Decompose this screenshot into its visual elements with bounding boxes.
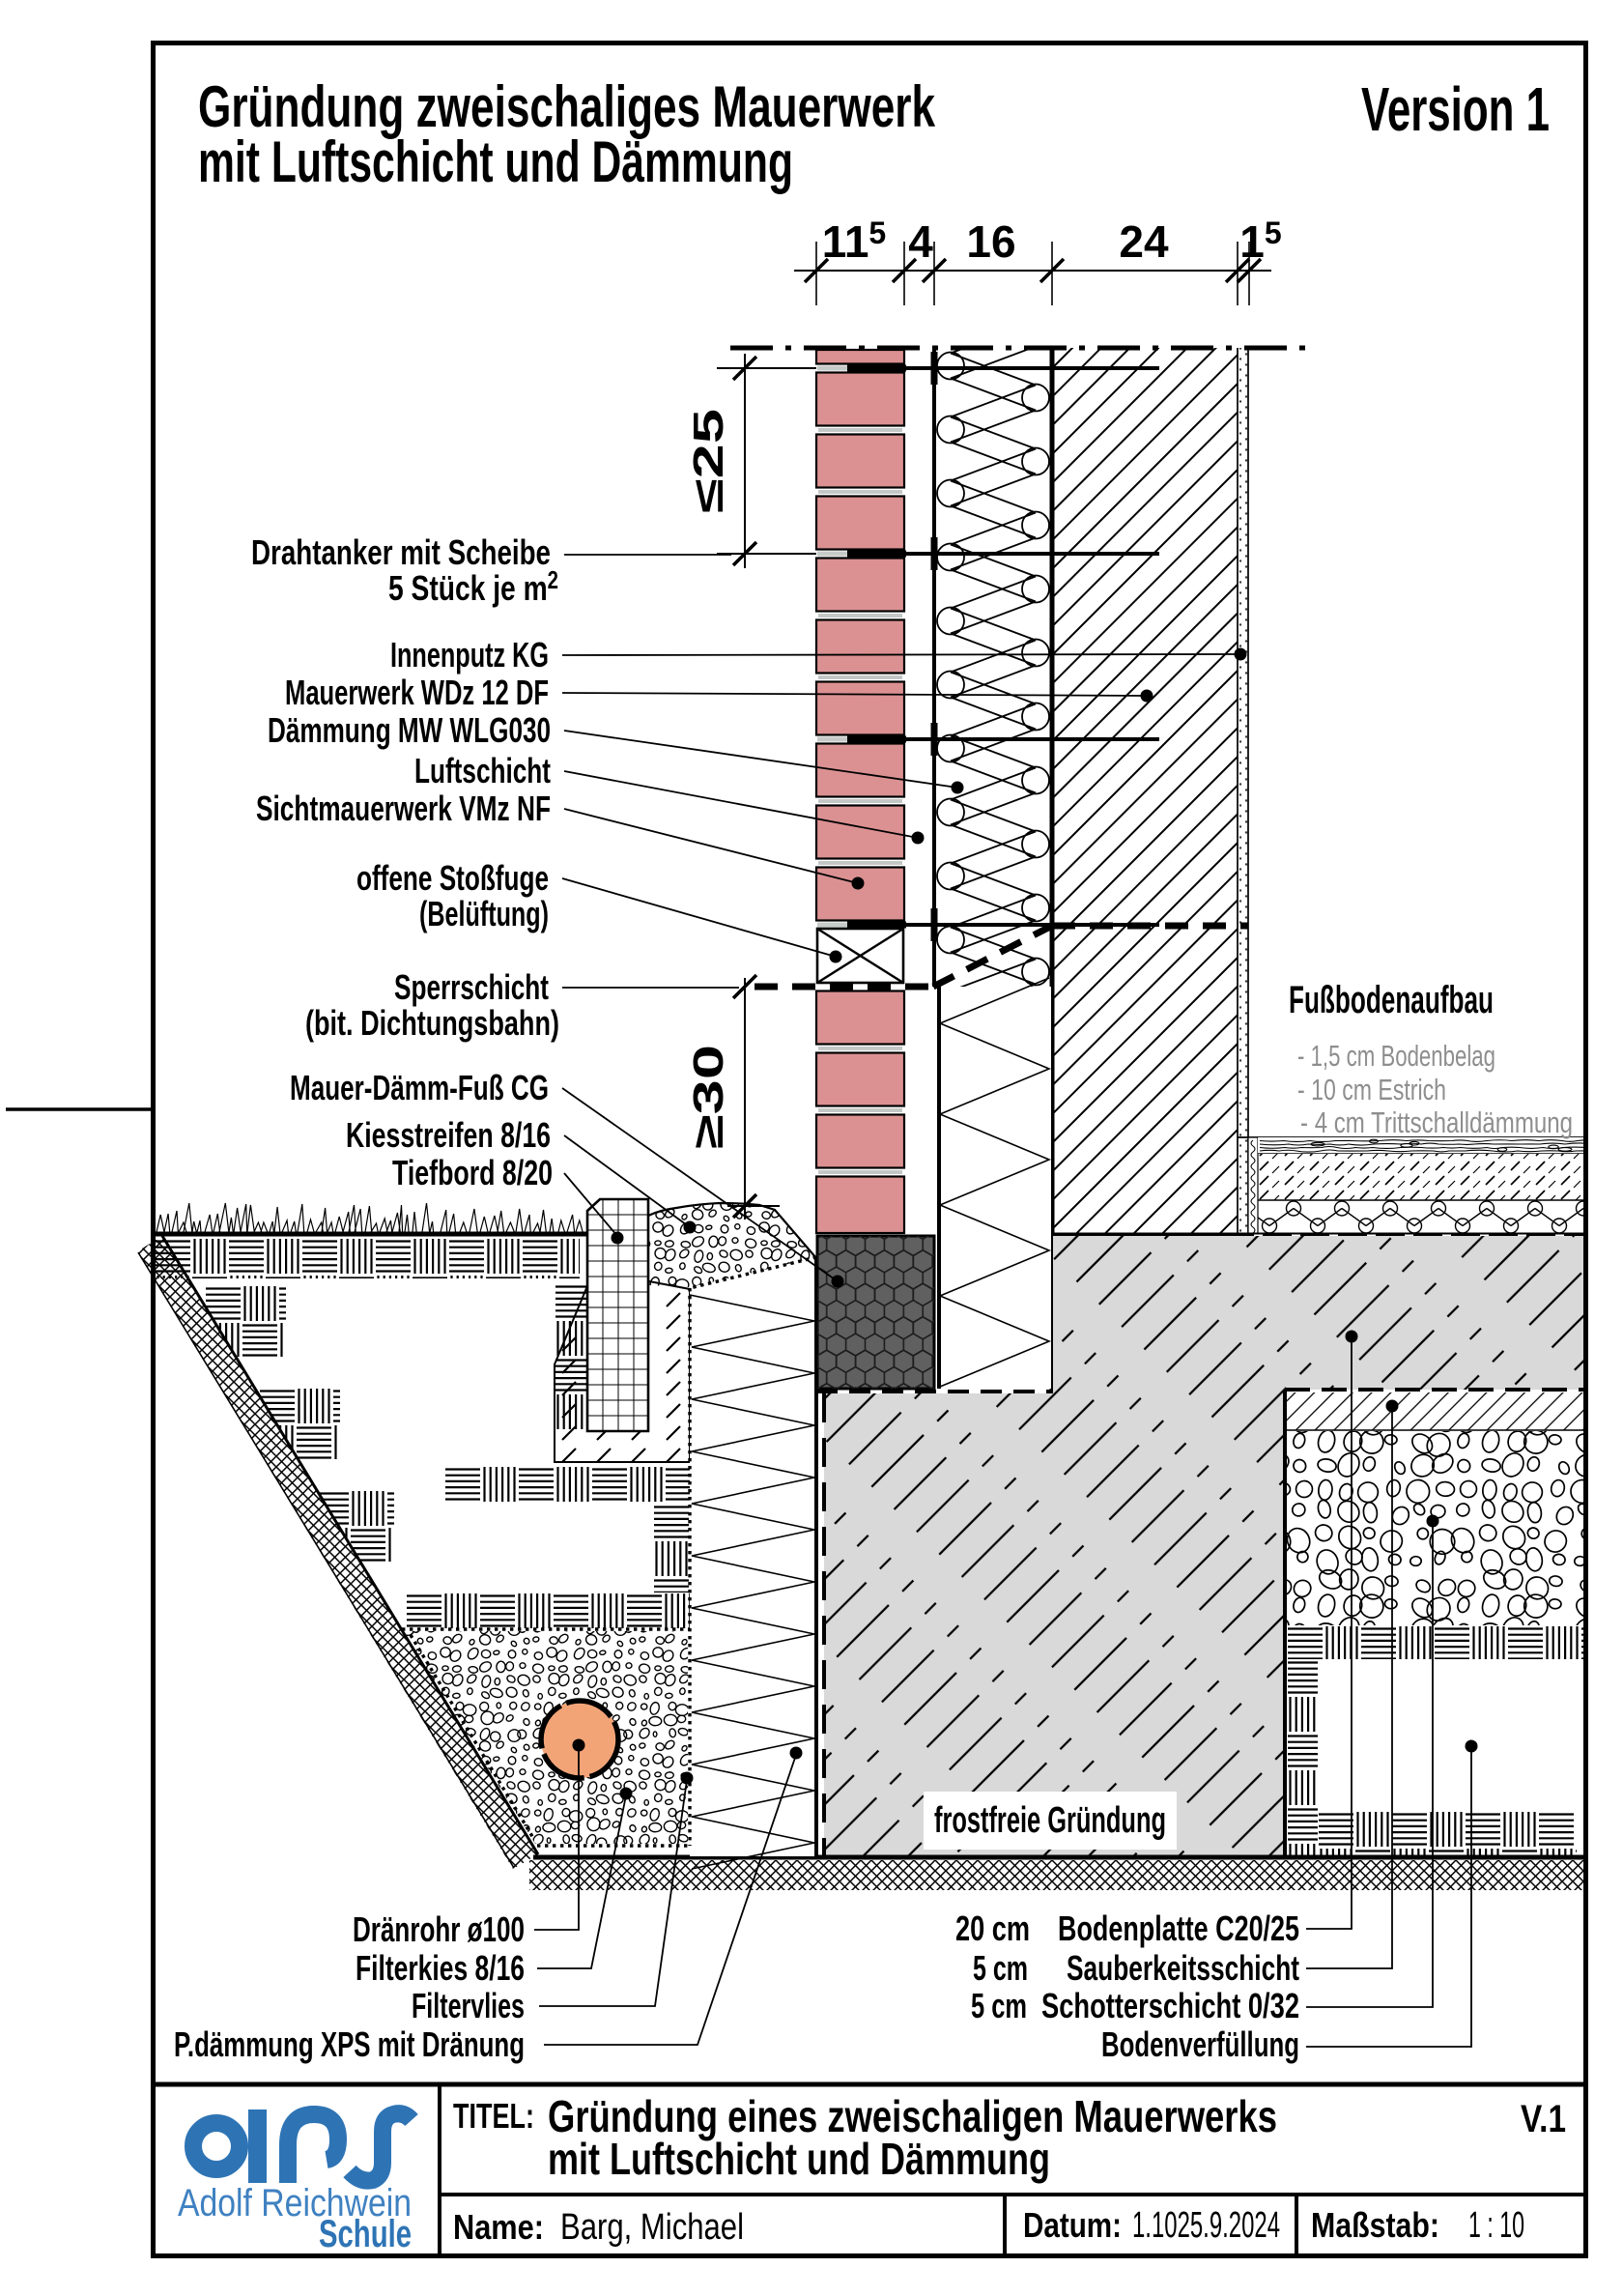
svg-text:Mauer-Dämm-Fuß CG: Mauer-Dämm-Fuß CG xyxy=(290,1068,549,1107)
svg-text:4: 4 xyxy=(908,216,933,267)
svg-text:Bodenverfüllung: Bodenverfüllung xyxy=(1101,2024,1299,2064)
svg-text:Bodenplatte C20/25: Bodenplatte C20/25 xyxy=(1058,1909,1299,1948)
svg-text:TITEL:: TITEL: xyxy=(453,2096,534,2136)
svg-text:Dämmung MW WLG030: Dämmung MW WLG030 xyxy=(268,710,551,750)
svg-text:(Belüftung): (Belüftung) xyxy=(419,894,549,933)
svg-text:5 cm: 5 cm xyxy=(971,1986,1027,2025)
svg-text:Schule: Schule xyxy=(319,2213,412,2255)
svg-text:Datum:: Datum: xyxy=(1023,2205,1122,2245)
svg-text:Mauerwerk WDz 12 DF: Mauerwerk WDz 12 DF xyxy=(285,673,549,712)
svg-text:Dränrohr ø100: Dränrohr ø100 xyxy=(353,1909,525,1949)
svg-text:≤25: ≤25 xyxy=(685,409,732,513)
svg-text:1 : 10: 1 : 10 xyxy=(1468,2205,1524,2246)
svg-text:- 1,5 cm Bodenbelag: - 1,5 cm Bodenbelag xyxy=(1297,1039,1495,1073)
svg-text:- 10 cm Estrich: - 10 cm Estrich xyxy=(1297,1073,1446,1106)
svg-text:Innenputz KG: Innenputz KG xyxy=(390,635,549,674)
svg-text:Filterkies 8/16: Filterkies 8/16 xyxy=(356,1948,525,1988)
svg-text:Maßstab:: Maßstab: xyxy=(1311,2205,1439,2245)
svg-text:offene Stoßfuge: offene Stoßfuge xyxy=(356,858,549,898)
svg-text:Kiesstreifen 8/16: Kiesstreifen 8/16 xyxy=(346,1115,551,1155)
svg-text:Schotterschicht 0/32: Schotterschicht 0/32 xyxy=(1041,1986,1299,2025)
svg-text:5 Stück je m2: 5 Stück je m2 xyxy=(388,565,558,608)
svg-text:Drahtanker mit Scheibe: Drahtanker mit Scheibe xyxy=(251,532,551,572)
svg-text:Name:: Name: xyxy=(453,2207,544,2247)
svg-text:24: 24 xyxy=(1119,216,1169,267)
svg-text:1.1025.9.2024: 1.1025.9.2024 xyxy=(1132,2205,1280,2246)
svg-text:- 4 cm Trittschalldämmung: - 4 cm Trittschalldämmung xyxy=(1300,1105,1573,1139)
svg-text:(bit. Dichtungsbahn): (bit. Dichtungsbahn) xyxy=(305,1003,559,1043)
svg-text:Sperrschicht: Sperrschicht xyxy=(394,967,549,1007)
svg-text:Barg, Michael: Barg, Michael xyxy=(560,2207,744,2248)
svg-text:≥30: ≥30 xyxy=(685,1045,732,1149)
svg-text:Filtervlies: Filtervlies xyxy=(412,1986,525,2025)
svg-text:Fußbodenaufbau: Fußbodenaufbau xyxy=(1289,979,1494,1021)
svg-text:mit Luftschicht und Dämmung: mit Luftschicht und Dämmung xyxy=(548,2134,1050,2184)
svg-text:Tiefbord 8/20: Tiefbord 8/20 xyxy=(392,1153,553,1192)
svg-text:frostfreie Gründung: frostfreie Gründung xyxy=(934,1800,1166,1841)
svg-text:V.1: V.1 xyxy=(1521,2098,1566,2140)
svg-text:Version 1: Version 1 xyxy=(1361,74,1550,144)
svg-text:20 cm: 20 cm xyxy=(955,1909,1030,1948)
svg-text:P.dämmung XPS mit Dränung: P.dämmung XPS mit Dränung xyxy=(174,2024,525,2064)
svg-text:Sauberkeitsschicht: Sauberkeitsschicht xyxy=(1067,1948,1299,1988)
svg-text:16: 16 xyxy=(966,216,1015,267)
svg-text:Sichtmauerwerk VMz NF: Sichtmauerwerk VMz NF xyxy=(256,789,551,828)
svg-text:5 cm: 5 cm xyxy=(973,1948,1028,1988)
svg-text:Luftschicht: Luftschicht xyxy=(414,751,551,790)
svg-text:mit Luftschicht und Dämmung: mit Luftschicht und Dämmung xyxy=(198,129,793,194)
